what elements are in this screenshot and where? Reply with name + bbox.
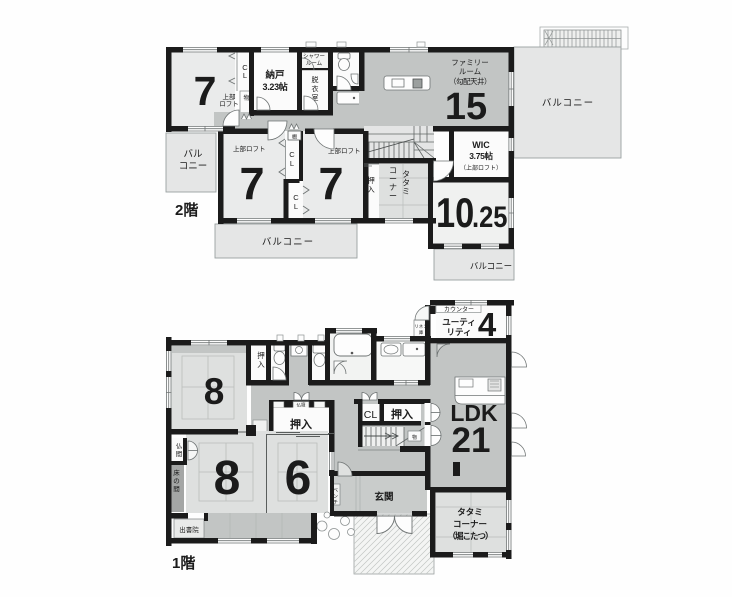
svg-text:WIC: WIC bbox=[472, 140, 490, 150]
svg-text:3.23帖: 3.23帖 bbox=[262, 81, 287, 92]
svg-text:バルコニー: バルコニー bbox=[542, 98, 594, 109]
svg-text:床: 床 bbox=[173, 468, 180, 477]
svg-text:L: L bbox=[243, 71, 247, 80]
svg-text:ユーティ: ユーティ bbox=[442, 317, 476, 327]
svg-text:10: 10 bbox=[436, 190, 474, 237]
svg-text:ルーム: ルーム bbox=[459, 67, 481, 76]
svg-text:リティ: リティ bbox=[447, 327, 472, 337]
svg-text:玄関: 玄関 bbox=[374, 491, 393, 503]
svg-text:ファミリー: ファミリー bbox=[451, 58, 489, 67]
svg-text:衣: 衣 bbox=[312, 84, 319, 93]
svg-text:棚: 棚 bbox=[292, 134, 297, 141]
svg-text:物: 物 bbox=[412, 434, 417, 441]
svg-text:8: 8 bbox=[204, 371, 225, 412]
svg-text:庫: 庫 bbox=[419, 329, 424, 336]
svg-text:L: L bbox=[290, 159, 294, 168]
svg-text:（上部ロフト）: （上部ロフト） bbox=[460, 164, 502, 172]
svg-text:21: 21 bbox=[452, 421, 491, 460]
svg-text:押入: 押入 bbox=[290, 417, 312, 431]
svg-text:L: L bbox=[294, 202, 298, 211]
svg-text:仏壇: 仏壇 bbox=[297, 402, 306, 409]
svg-text:8: 8 bbox=[214, 452, 241, 505]
svg-text:7: 7 bbox=[239, 158, 264, 209]
svg-text:間: 間 bbox=[176, 450, 183, 458]
svg-text:CL: CL bbox=[364, 409, 378, 421]
svg-text:物: 物 bbox=[243, 94, 249, 102]
svg-text:バル: バル bbox=[183, 149, 203, 160]
svg-text:（堀こたつ）: （堀こたつ） bbox=[447, 531, 492, 541]
svg-text:の: の bbox=[173, 478, 180, 485]
svg-text:6: 6 bbox=[285, 452, 312, 505]
svg-text:出書院: 出書院 bbox=[179, 525, 199, 534]
svg-text:.25: .25 bbox=[472, 200, 507, 233]
svg-text:7: 7 bbox=[194, 68, 217, 114]
svg-text:バルコニー: バルコニー bbox=[470, 261, 512, 271]
svg-text:（勾配天井）: （勾配天井） bbox=[449, 76, 491, 86]
svg-text:コーナー: コーナー bbox=[389, 166, 397, 201]
svg-text:入: 入 bbox=[257, 360, 265, 369]
svg-text:タタミ: タタミ bbox=[402, 170, 410, 196]
svg-text:仏: 仏 bbox=[176, 443, 183, 450]
svg-text:3.75帖: 3.75帖 bbox=[469, 151, 493, 161]
svg-text:上部ロフト: 上部ロフト bbox=[233, 144, 266, 153]
svg-text:ロフト: ロフト bbox=[219, 100, 239, 108]
svg-text:押入: 押入 bbox=[391, 407, 413, 421]
svg-text:4: 4 bbox=[478, 306, 497, 343]
svg-text:15: 15 bbox=[445, 86, 487, 128]
svg-text:1階: 1階 bbox=[172, 554, 195, 572]
svg-text:納戸: 納戸 bbox=[265, 69, 285, 81]
svg-text:バルコニー: バルコニー bbox=[262, 237, 314, 248]
svg-text:7: 7 bbox=[318, 158, 343, 209]
svg-text:脱: 脱 bbox=[312, 75, 319, 84]
svg-text:コーナー: コーナー bbox=[453, 519, 487, 529]
svg-text:タタミ: タタミ bbox=[457, 507, 483, 517]
svg-text:押: 押 bbox=[257, 350, 265, 360]
svg-text:C: C bbox=[293, 193, 299, 202]
svg-text:カウンター: カウンター bbox=[444, 306, 474, 314]
svg-text:間: 間 bbox=[173, 485, 180, 493]
svg-text:C: C bbox=[289, 150, 295, 159]
svg-text:ルーム: ルーム bbox=[306, 60, 323, 67]
svg-text:2階: 2階 bbox=[175, 201, 198, 219]
svg-text:上部: 上部 bbox=[223, 92, 237, 101]
svg-text:コニー: コニー bbox=[179, 161, 208, 172]
